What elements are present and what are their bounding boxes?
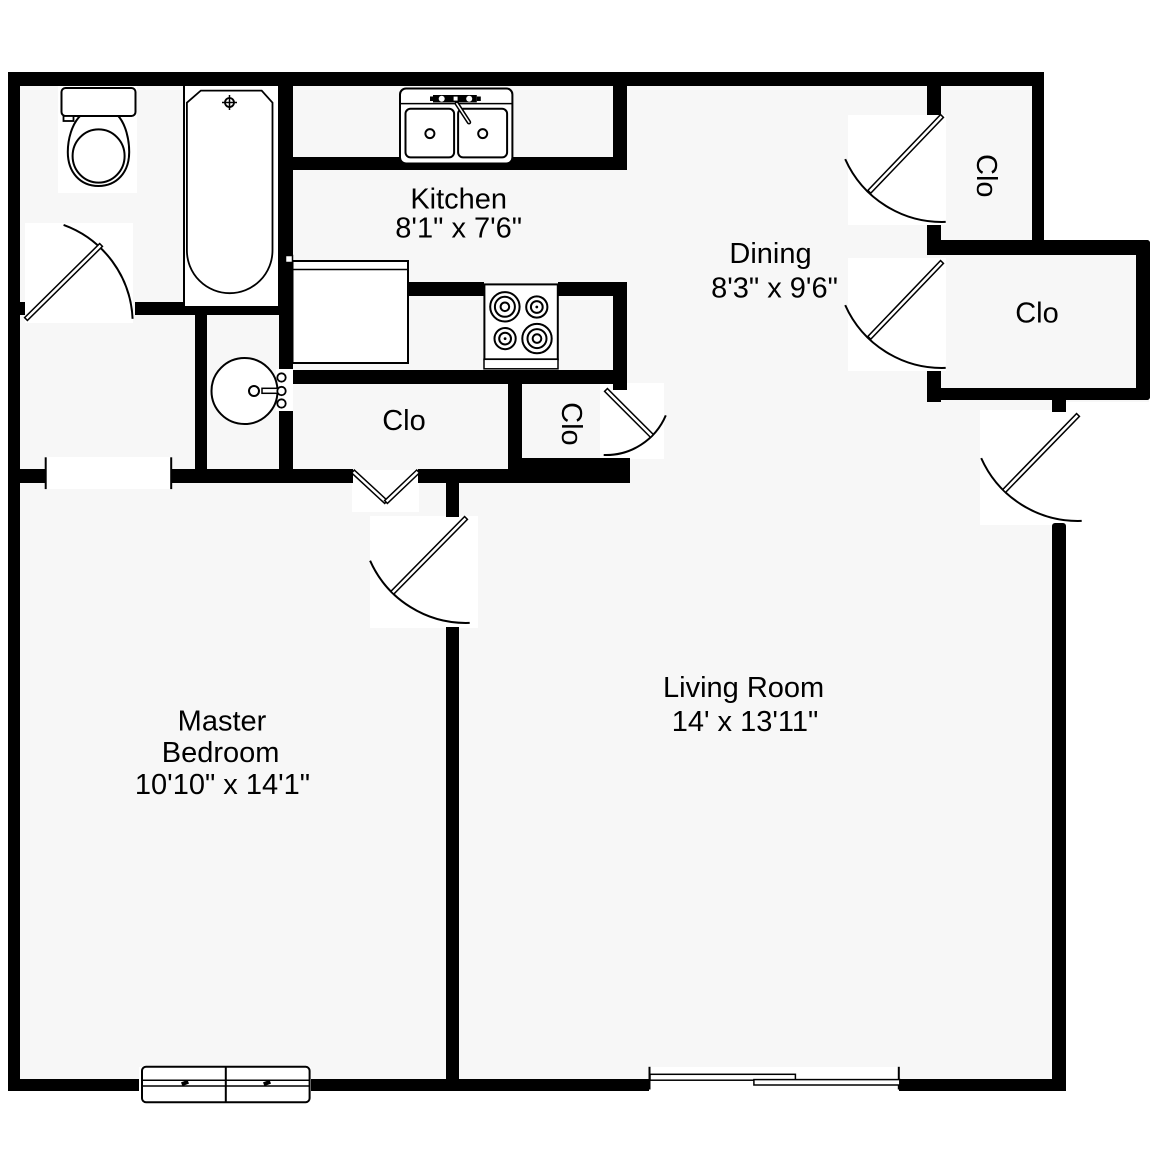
svg-text:Clo: Clo — [970, 154, 1002, 198]
svg-text:Kitchen: Kitchen — [410, 184, 507, 216]
svg-text:Clo: Clo — [1015, 298, 1059, 330]
svg-text:8'3" x 9'6": 8'3" x 9'6" — [711, 273, 838, 305]
svg-text:Clo: Clo — [555, 402, 587, 446]
svg-text:Living Room: Living Room — [663, 672, 824, 704]
svg-text:Clo: Clo — [382, 405, 426, 437]
svg-text:14' x 13'11": 14' x 13'11" — [672, 706, 819, 738]
svg-text:Bedroom: Bedroom — [162, 737, 280, 769]
svg-text:Master: Master — [178, 705, 267, 737]
svg-text:Dining: Dining — [729, 238, 811, 270]
svg-text:10'10" x 14'1": 10'10" x 14'1" — [135, 769, 310, 801]
svg-text:8'1" x 7'6": 8'1" x 7'6" — [395, 213, 522, 245]
